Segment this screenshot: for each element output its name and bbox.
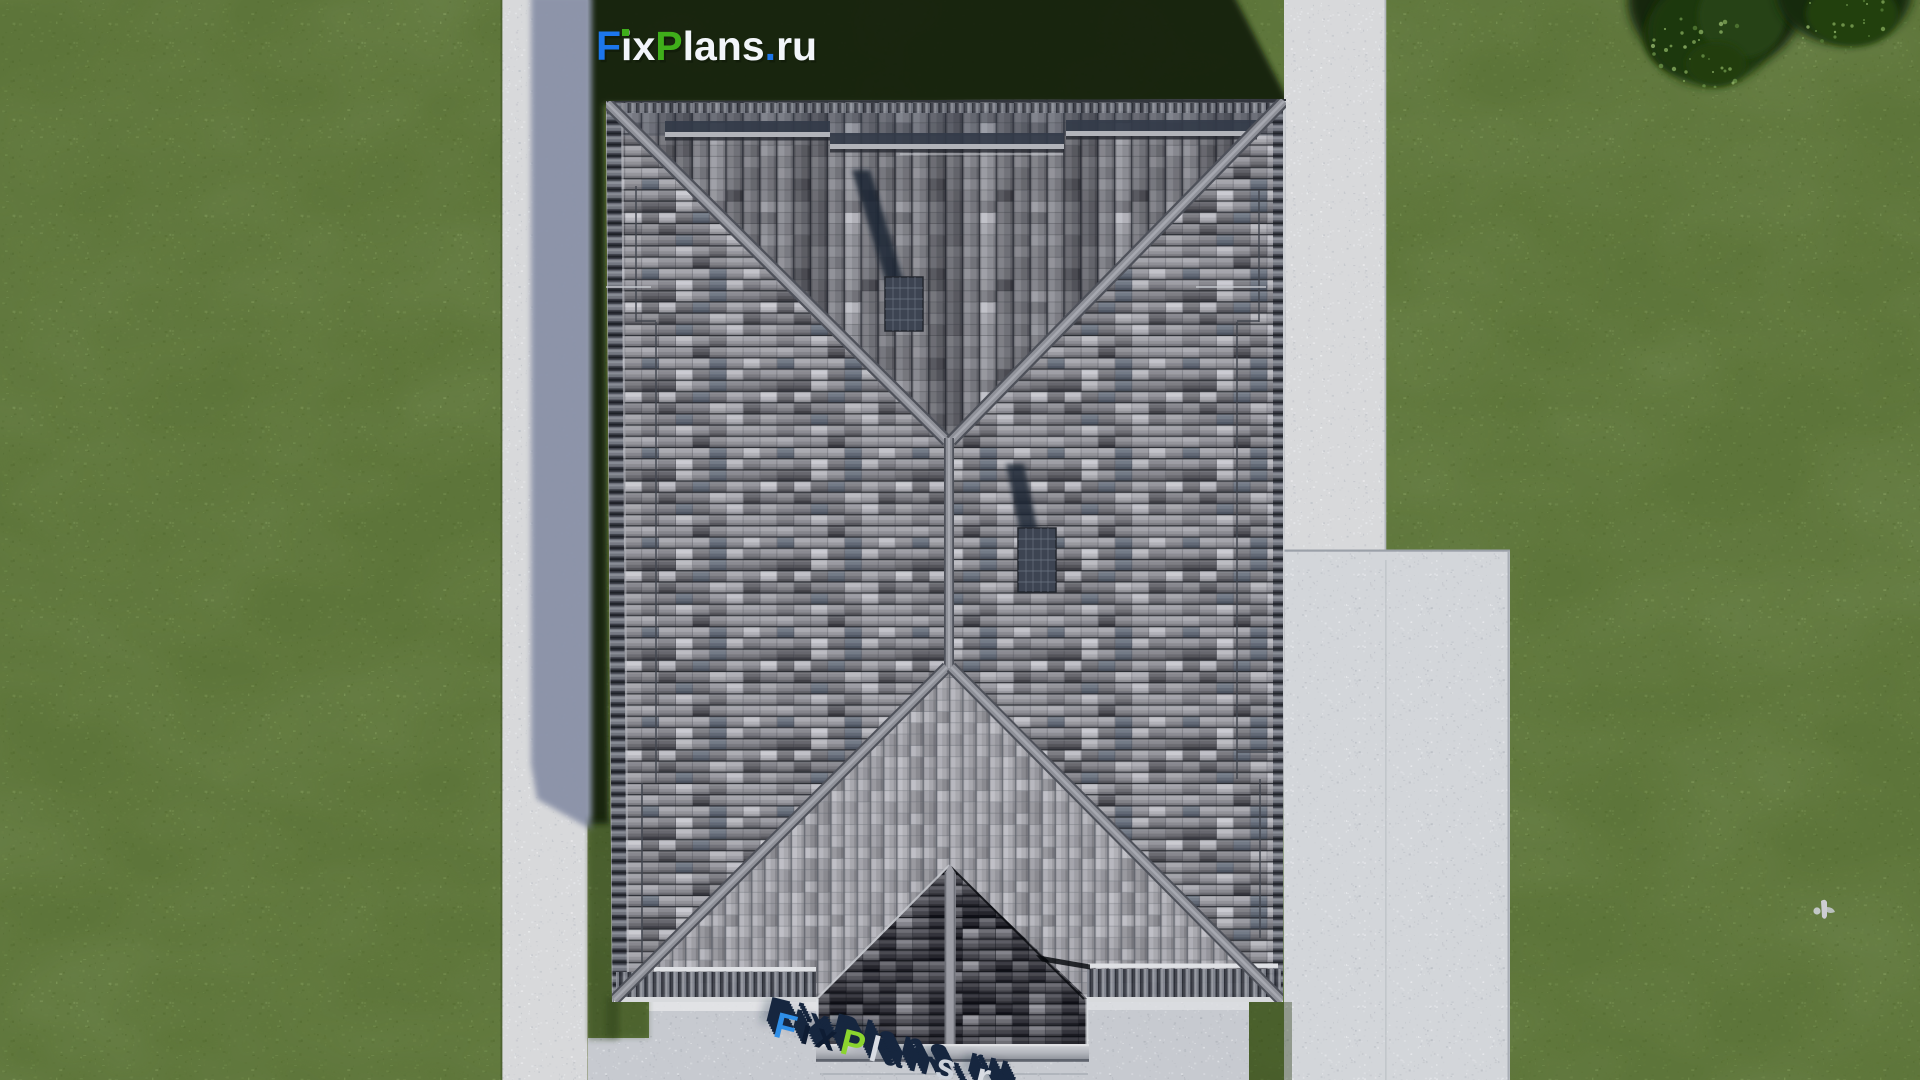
svg-text:FixPlans.ru: FixPlans.ru [596,23,817,69]
